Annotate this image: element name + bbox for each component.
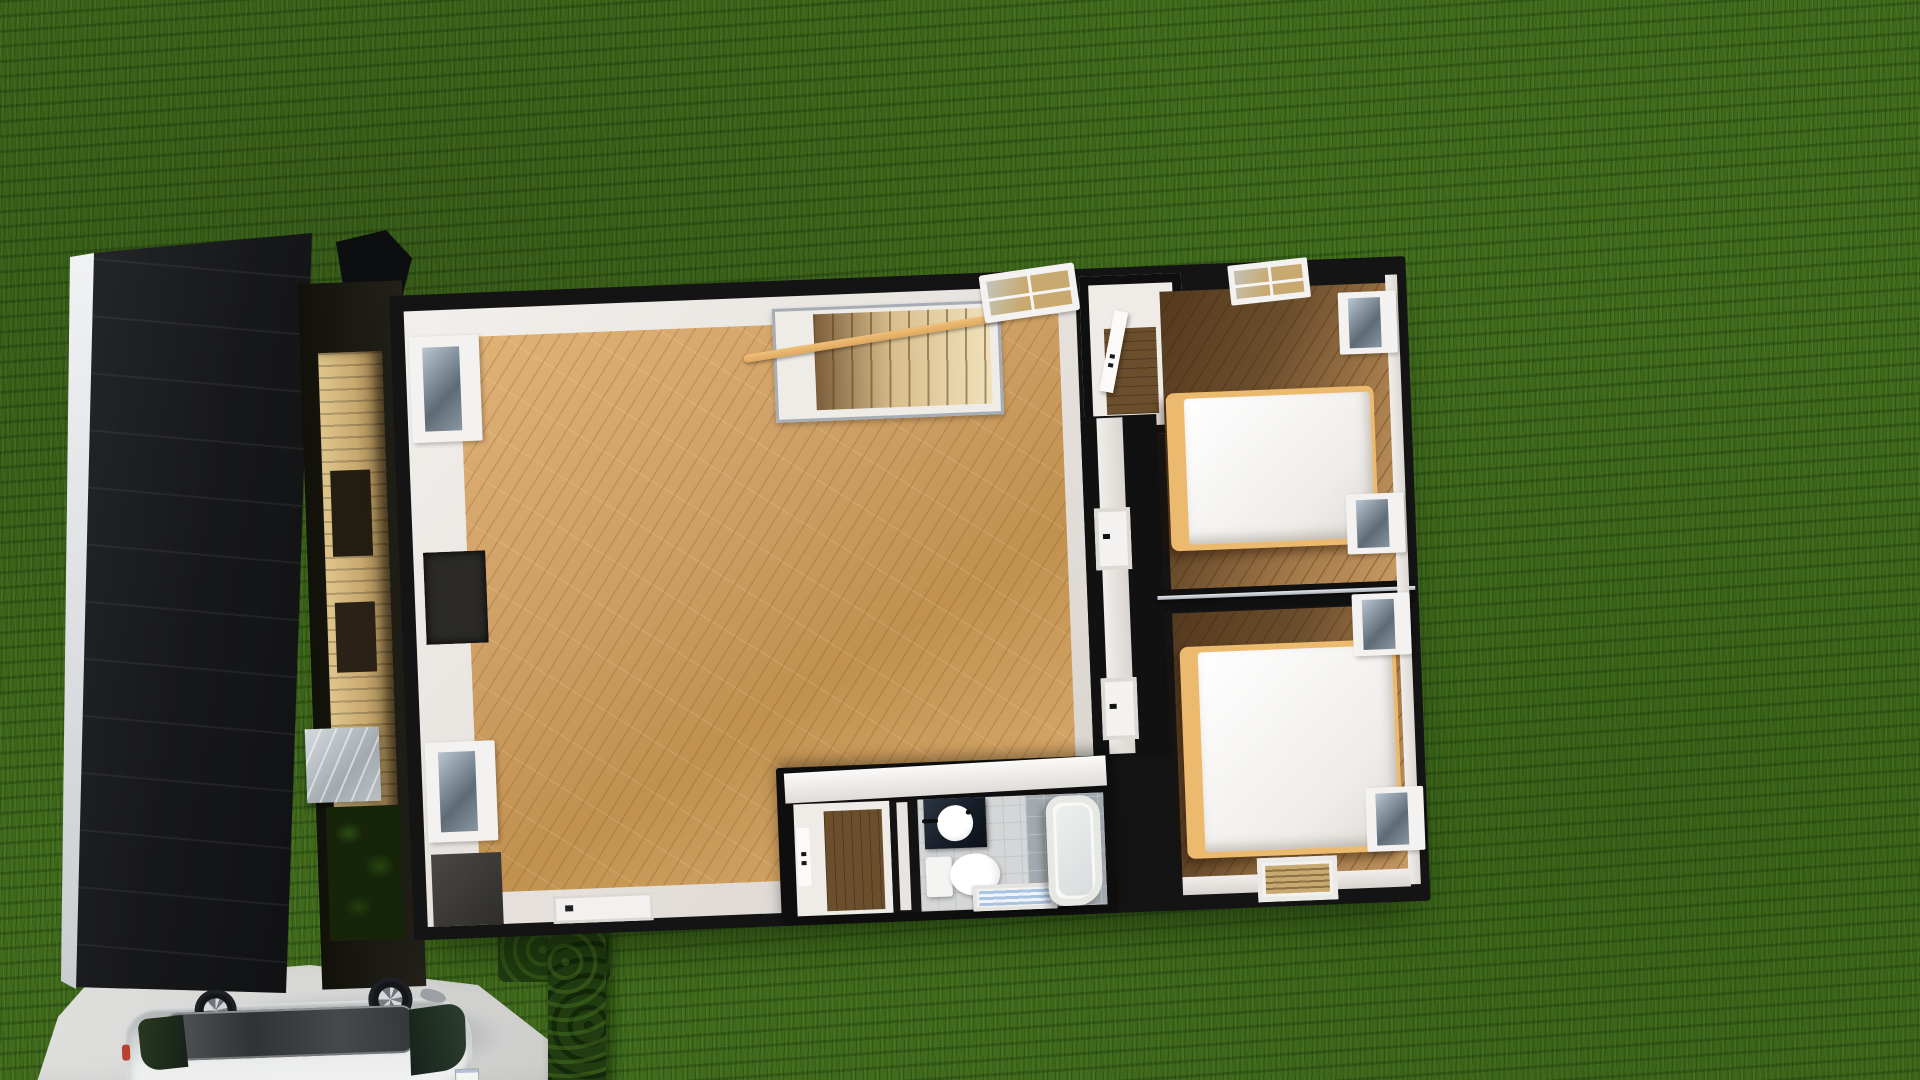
window-glass [438, 751, 479, 832]
living-left-window-lower [425, 740, 499, 843]
bedroom-top-right-window-1 [1338, 290, 1398, 354]
bathtub-basin [1056, 805, 1094, 896]
bedroom-bottom-right-window-1 [1351, 592, 1411, 656]
bedroom-bottom-door [1101, 677, 1139, 740]
bathroom-hall [793, 801, 893, 917]
toilet-tank [925, 856, 953, 897]
bathroom-block [776, 755, 1118, 926]
bedroom-bottom-right-window-2 [1365, 786, 1425, 852]
window-blinds [979, 887, 1052, 906]
door-handle [801, 852, 806, 856]
bathroom-hall-floor [824, 809, 886, 911]
window-glass [1348, 297, 1381, 348]
living-wall-recess [423, 550, 489, 644]
car-license-plate [455, 1068, 480, 1080]
side-wall-window-lower [335, 601, 377, 672]
window-blinds [1265, 864, 1330, 894]
car-rear-window [137, 1015, 188, 1072]
entry-cabinet [431, 852, 504, 927]
living-left-window-upper [409, 335, 483, 444]
marble-counter [305, 727, 382, 804]
door-handle [1109, 354, 1115, 359]
faucet [922, 819, 938, 824]
car-roof [165, 1005, 415, 1062]
hedge-row [548, 930, 606, 1080]
bedroom-bottom-wall-window [1257, 855, 1339, 902]
window-glass [422, 346, 463, 432]
door-handle [1110, 704, 1117, 709]
scene [0, 0, 1920, 1080]
bedroom-top-door [1094, 507, 1132, 570]
bathroom-window [973, 882, 1058, 911]
door-handle [565, 905, 573, 911]
vanity [923, 797, 987, 849]
window-glass [1362, 599, 1395, 650]
divider-wall [1080, 414, 1169, 759]
bathroom-mid-wall [889, 800, 921, 913]
side-shrub [326, 805, 405, 942]
parked-car [118, 979, 512, 1080]
bathtub [1045, 795, 1103, 907]
wall-cap [896, 802, 911, 910]
bathroom-hall-door [796, 828, 811, 886]
bedroom-top-right-window-2 [1346, 492, 1406, 554]
staircase [772, 300, 1004, 423]
side-wall-window-upper [330, 470, 373, 557]
car-taillight [122, 1044, 131, 1060]
bathroom [917, 792, 1107, 911]
window-glass [1376, 793, 1409, 845]
house-upper-floor [389, 256, 1431, 940]
living-bottom-door [553, 892, 654, 924]
window-glass [1356, 499, 1389, 548]
door-handle [1103, 534, 1110, 539]
